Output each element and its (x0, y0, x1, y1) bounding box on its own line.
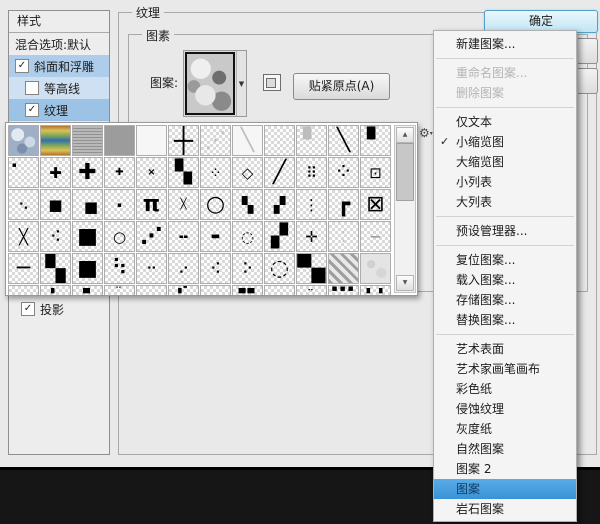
pattern-swatch[interactable]: ╳ (168, 189, 199, 220)
menu-separator (436, 334, 574, 335)
menu-item[interactable]: 彩色纸 (434, 379, 576, 399)
style-checkbox[interactable] (25, 81, 39, 95)
menu-item: 重命名图案... (434, 63, 576, 83)
pattern-grid: ┼⋰╲▘╲▘▪✚✚✚×▚⁘◇╱⠿⁘⊡⠢■■▪π╳○▚▞⋮┏⊠╳⠪■○⋰╍▬◌▞✛… (8, 125, 391, 296)
menu-item[interactable]: 艺术表面 (434, 339, 576, 359)
gear-icon: ⚙ (419, 126, 430, 140)
menu-item[interactable]: 艺术家画笔画布 (434, 359, 576, 379)
cancel-button-partial[interactable] (578, 38, 598, 64)
pattern-swatch[interactable]: ▘ (296, 125, 327, 156)
pattern-swatch[interactable]: ▚ (232, 189, 263, 220)
pattern-swatch[interactable]: ⠳ (104, 253, 135, 284)
menu-item[interactable]: 侵蚀纹理 (434, 399, 576, 419)
pattern-swatch[interactable]: ─ (360, 221, 391, 252)
pattern-swatch[interactable]: ⠢ (8, 189, 39, 220)
pattern-swatch[interactable]: ◌ (264, 253, 295, 284)
pattern-swatch[interactable]: ┏ (328, 189, 359, 220)
menu-item[interactable]: 替换图案... (434, 310, 576, 330)
pattern-swatch[interactable]: ⠒ (136, 253, 167, 284)
pattern-swatch[interactable]: ▖ (40, 285, 71, 296)
menu-item[interactable]: 复位图案... (434, 250, 576, 270)
pattern-swatch[interactable]: ⠕ (232, 253, 263, 284)
pattern-swatch[interactable]: ⠔ (168, 253, 199, 284)
menu-item[interactable]: 存储图案... (434, 290, 576, 310)
current-pattern-thumbnail[interactable] (185, 52, 235, 115)
sidebar-item[interactable]: ✓斜面和浮雕 (9, 55, 109, 77)
pattern-swatch[interactable] (72, 125, 103, 156)
pattern-swatch[interactable]: ▬ (200, 221, 231, 252)
pattern-swatch[interactable]: ▪ (104, 189, 135, 220)
new-style-button-partial[interactable] (578, 68, 598, 94)
layer-style-dialog: 样式 混合选项:默认✓斜面和浮雕等高线✓纹理 ✓ 投影 纹理 图素 图案: ▼ … (0, 0, 600, 524)
pattern-swatch[interactable]: ⋰ (200, 125, 231, 156)
menu-separator (436, 58, 574, 59)
menu-item[interactable]: 预设管理器... (434, 221, 576, 241)
pattern-swatch[interactable] (104, 125, 135, 156)
pattern-swatch[interactable]: ■ (40, 189, 71, 220)
elements-group-label: 图素 (142, 27, 174, 44)
pattern-flyout-menu: 新建图案...重命名图案...删除图案仅文本小缩览图✓大缩览图小列表大列表预设管… (433, 30, 577, 522)
pattern-swatch[interactable]: ▪ (8, 157, 39, 188)
pattern-swatch[interactable]: ○ (200, 189, 231, 220)
menu-item[interactable]: 自然图案 (434, 439, 576, 459)
pattern-swatch[interactable] (264, 285, 295, 296)
pattern-grid-scrollbar[interactable]: ▲ ▼ (394, 125, 416, 293)
pattern-swatch[interactable]: ⋰ (136, 221, 167, 252)
sidebar-item-drop-shadow[interactable]: ✓ 投影 (15, 298, 107, 320)
pattern-swatch[interactable]: ╲ (328, 125, 359, 156)
pattern-swatch[interactable]: ▚ (296, 253, 327, 284)
pattern-swatch[interactable]: ╳ (8, 221, 39, 252)
pattern-swatch[interactable]: ▞ (264, 189, 295, 220)
styles-list-rows: 混合选项:默认✓斜面和浮雕等高线✓纹理 (9, 33, 109, 121)
pattern-swatch[interactable] (8, 125, 39, 156)
menu-item[interactable]: 图案 (434, 479, 576, 499)
pattern-field-label: 图案: (150, 74, 178, 91)
drop-shadow-checkbox[interactable]: ✓ (21, 302, 35, 316)
pattern-swatch[interactable]: ■ (72, 253, 103, 284)
sidebar-item[interactable]: ✓纹理 (9, 99, 109, 121)
scrollbar-thumb[interactable] (396, 143, 414, 201)
pattern-swatch[interactable]: ◌ (232, 221, 263, 252)
pattern-swatch[interactable]: π (136, 189, 167, 220)
snap-to-origin-button[interactable]: 贴紧原点(A) (293, 73, 390, 100)
menu-item[interactable]: 新建图案... (434, 34, 576, 54)
menu-separator (436, 245, 574, 246)
pattern-swatch[interactable]: ▪▪▪ (328, 285, 359, 296)
pattern-swatch[interactable]: ■ (72, 221, 103, 252)
pattern-swatch[interactable]: ⋮ (296, 189, 327, 220)
pattern-swatch[interactable]: ⠪ (200, 253, 231, 284)
pattern-swatch[interactable]: ⠪ (40, 221, 71, 252)
pattern-swatch[interactable] (136, 125, 167, 156)
pattern-picker-well[interactable]: ▼ (183, 50, 247, 117)
pattern-swatch[interactable]: ╲ (232, 125, 263, 156)
pattern-swatch[interactable]: ⊡ (360, 157, 391, 188)
pattern-swatch[interactable]: ▗▘ (168, 285, 199, 296)
pattern-swatch[interactable]: ▄ (72, 285, 103, 296)
pattern-swatch[interactable]: ▚ (168, 157, 199, 188)
menu-item[interactable]: 仅文本 (434, 112, 576, 132)
menu-item[interactable]: 岩石图案 (434, 499, 576, 519)
menu-item[interactable]: 大列表 (434, 192, 576, 212)
pattern-swatch[interactable]: ▚ (40, 253, 71, 284)
pattern-swatch[interactable] (136, 285, 167, 296)
pattern-swatch[interactable]: ⁘ (200, 157, 231, 188)
pattern-swatch[interactable] (328, 253, 359, 284)
menu-separator (436, 107, 574, 108)
pattern-swatch[interactable]: ⊠ (360, 189, 391, 220)
style-item-label: 纹理 (44, 102, 68, 119)
pattern-swatch[interactable]: ✚ (40, 157, 71, 188)
style-item-label: 斜面和浮雕 (34, 58, 94, 75)
pattern-swatch[interactable] (8, 285, 39, 296)
pattern-swatch[interactable]: ⠤ (296, 285, 327, 296)
menu-item[interactable]: 小列表 (434, 172, 576, 192)
style-item-label: 混合选项:默认 (15, 36, 91, 53)
menu-item[interactable]: 图案 2 (434, 459, 576, 479)
pattern-swatch[interactable]: ✛ (296, 221, 327, 252)
sidebar-item[interactable]: 等高线 (9, 77, 109, 99)
menu-item[interactable]: 大缩览图 (434, 152, 576, 172)
drop-shadow-label: 投影 (40, 301, 64, 318)
pattern-swatch[interactable] (264, 125, 295, 156)
menu-check-icon: ✓ (440, 132, 449, 152)
pattern-swatch[interactable]: ■ (72, 189, 103, 220)
sidebar-item[interactable]: 混合选项:默认 (9, 33, 109, 55)
pattern-swatch[interactable]: ▖▗ (360, 285, 391, 296)
pattern-swatch[interactable]: ◇ (232, 157, 263, 188)
menu-item[interactable]: 小缩览图✓ (434, 132, 576, 152)
pattern-swatch[interactable]: ○ (104, 221, 135, 252)
pattern-swatch[interactable]: ╍ (168, 221, 199, 252)
scroll-down-icon[interactable]: ▼ (396, 275, 414, 291)
pattern-swatch[interactable]: × (136, 157, 167, 188)
menu-item[interactable]: 载入图案... (434, 270, 576, 290)
pattern-swatch[interactable]: ─ (8, 253, 39, 284)
menu-separator (436, 216, 574, 217)
pattern-swatch[interactable]: ▞ (264, 221, 295, 252)
pattern-swatch[interactable]: ⠒ (104, 285, 135, 296)
pattern-picker-popup: ┼⋰╲▘╲▘▪✚✚✚×▚⁘◇╱⠿⁘⊡⠢■■▪π╳○▚▞⋮┏⊠╳⠪■○⋰╍▬◌▞✛… (5, 122, 418, 296)
pattern-swatch[interactable]: ▄▄ (232, 285, 263, 296)
texture-group-label: 纹理 (132, 4, 164, 21)
styles-list-title: 样式 (9, 11, 109, 31)
picker-menu-gear-icon[interactable]: ⚙▾ (419, 126, 433, 140)
menu-item: 删除图案 (434, 83, 576, 103)
style-checkbox[interactable]: ✓ (15, 59, 29, 73)
new-pattern-from-current-icon[interactable] (263, 74, 281, 91)
pattern-swatch[interactable]: ⁘ (328, 157, 359, 188)
pattern-swatch[interactable]: ⁚ (328, 221, 359, 252)
style-item-label: 等高线 (44, 80, 80, 97)
pattern-swatch[interactable] (200, 285, 231, 296)
pattern-swatch[interactable]: ╱ (264, 157, 295, 188)
pattern-swatch[interactable] (360, 253, 391, 284)
menu-item[interactable]: 灰度纸 (434, 419, 576, 439)
style-checkbox[interactable]: ✓ (25, 103, 39, 117)
pattern-swatch[interactable]: ✚ (72, 157, 103, 188)
scroll-up-icon[interactable]: ▲ (396, 127, 414, 143)
pattern-swatch[interactable]: ┼ (168, 125, 199, 156)
pattern-swatch[interactable] (40, 125, 71, 156)
pattern-swatch[interactable]: ⠿ (296, 157, 327, 188)
pattern-swatch[interactable]: ✚ (104, 157, 135, 188)
pattern-swatch[interactable]: ▘ (360, 125, 391, 156)
pattern-dropdown-arrow-icon[interactable]: ▼ (236, 51, 246, 116)
